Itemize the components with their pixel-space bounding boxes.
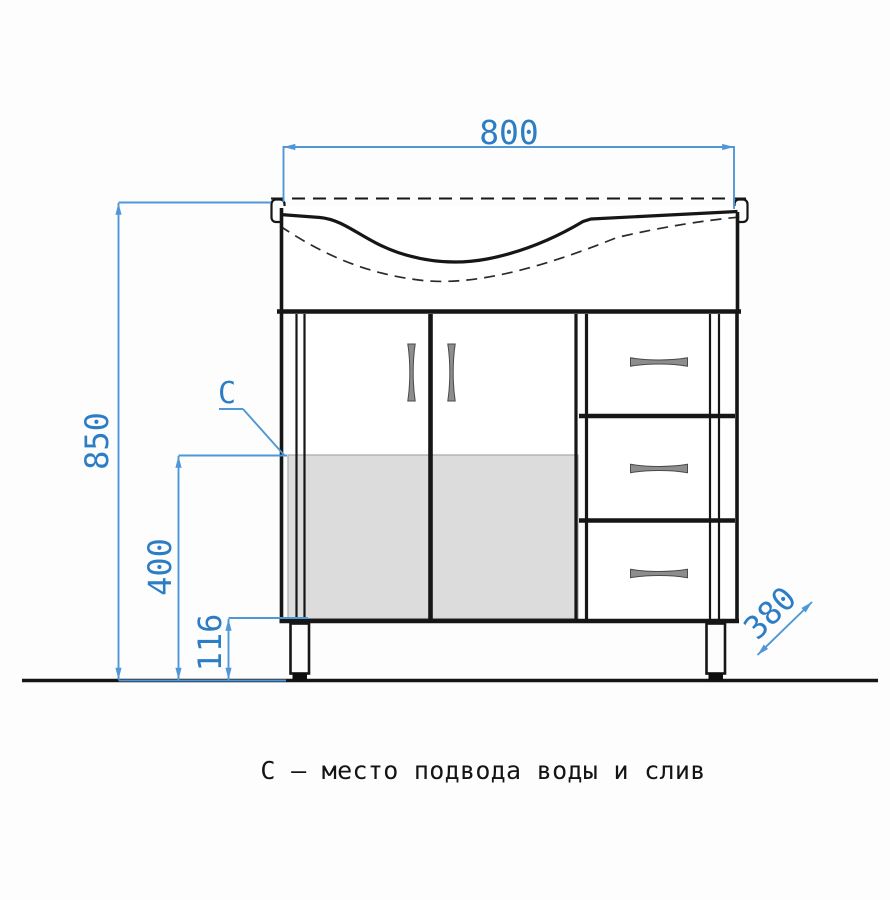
dim-depth-label: 380 xyxy=(736,579,804,647)
dim-clearance-label: 116 xyxy=(191,614,229,672)
legs xyxy=(291,624,726,681)
vanity-dimension-drawing: 800 850 400 116 380 C С – место подвода … xyxy=(0,0,890,900)
dimension-width-800: 800 xyxy=(284,113,735,209)
right-leg-foot xyxy=(709,673,724,681)
right-leg xyxy=(707,624,726,674)
sink xyxy=(271,199,748,313)
sink-apron xyxy=(281,206,738,311)
drawing-canvas: 800 850 400 116 380 C С – место подвода … xyxy=(0,0,890,900)
left-leg-foot xyxy=(293,673,308,681)
dim-zone-label: 400 xyxy=(141,538,179,596)
drawer-front-bottom xyxy=(588,522,733,619)
dim-width-label: 800 xyxy=(479,113,539,152)
zone-c-callout: C xyxy=(218,376,285,456)
dimension-depth-380: 380 xyxy=(736,579,812,655)
zone-c-marker-label: C xyxy=(218,376,236,411)
zone-c-shaded-area xyxy=(288,455,578,619)
dimension-height-850: 850 xyxy=(78,203,271,680)
cabinet xyxy=(277,312,741,623)
dim-height-label: 850 xyxy=(78,412,116,470)
left-leg xyxy=(291,624,310,674)
figure-caption: С – место подвода воды и слив xyxy=(260,756,705,785)
